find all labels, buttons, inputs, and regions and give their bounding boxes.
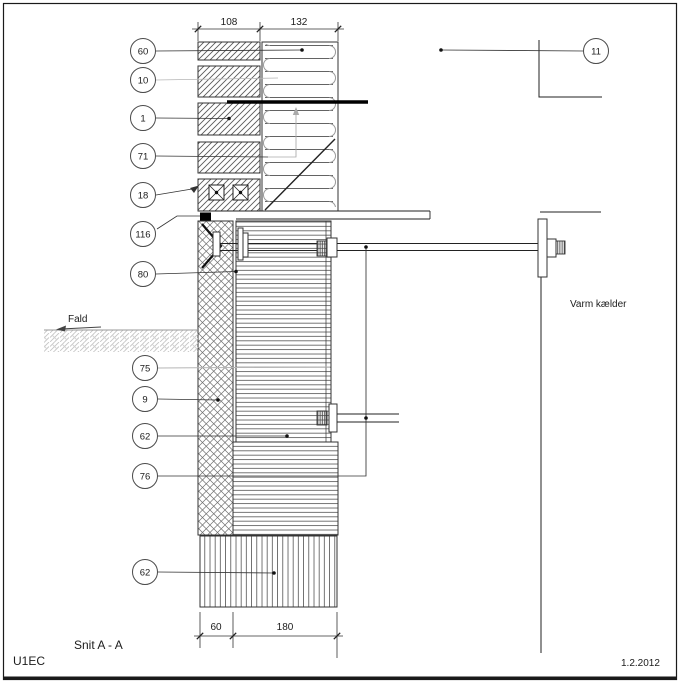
ground-hatch xyxy=(44,330,198,352)
callout-1-label: 1 xyxy=(140,114,145,125)
callout-76-label: 76 xyxy=(140,472,151,483)
callout-9: 9 xyxy=(133,387,158,412)
tie-rod-upper-plate xyxy=(238,228,243,260)
callout-76: 76 xyxy=(133,464,158,489)
callout-80: 80 xyxy=(131,262,156,287)
foundation-footing xyxy=(200,536,337,607)
dim-top-left: 108 xyxy=(221,17,238,28)
sheet-code: U1EC xyxy=(13,654,45,668)
tie-rod-lower-coupler xyxy=(317,411,327,425)
callout-1: 1 xyxy=(131,106,156,131)
tie-rod-upper-coupler xyxy=(317,241,327,256)
callout-11-label: 11 xyxy=(591,47,601,58)
callout-18-label: 18 xyxy=(138,191,149,202)
sealant-joint xyxy=(200,213,211,222)
callout-60: 60 xyxy=(131,39,156,64)
callout-75-label: 75 xyxy=(140,364,151,375)
callout-71-label: 71 xyxy=(138,152,149,163)
callout-10-label: 10 xyxy=(138,76,149,87)
section-drawing: Fald Varm kælder 60 xyxy=(0,0,680,686)
sheet-date: 1.2.2012 xyxy=(621,658,660,669)
callout-62-footing-label: 62 xyxy=(140,568,151,579)
tie-rod-thread-end xyxy=(556,241,565,254)
callout-116-label: 116 xyxy=(135,230,150,241)
drawing-sheet: Fald Varm kælder 60 xyxy=(0,0,680,686)
room-label: Varm kælder xyxy=(570,299,627,310)
callout-62-wall-label: 62 xyxy=(140,432,151,443)
tie-rod-anchor-plate xyxy=(538,219,547,277)
tie-rod-nut xyxy=(547,239,556,257)
callout-60-label: 60 xyxy=(138,47,149,58)
callout-75: 75 xyxy=(133,356,158,381)
section-title: Snit A - A xyxy=(74,638,123,652)
callout-62-footing: 62 xyxy=(133,560,158,585)
callout-71: 71 xyxy=(131,144,156,169)
concrete-wall xyxy=(233,221,338,535)
callout-80-label: 80 xyxy=(138,270,149,281)
dim-bottom-right: 180 xyxy=(277,622,294,633)
callout-62-wall: 62 xyxy=(133,424,158,449)
tie-rod-lower-plate xyxy=(329,404,337,432)
masonry-wall xyxy=(198,42,260,211)
dim-bottom-left: 60 xyxy=(210,622,222,633)
callout-116: 116 xyxy=(131,222,156,247)
callout-9-label: 9 xyxy=(142,395,147,406)
callout-18: 18 xyxy=(131,183,156,208)
insulation-batt xyxy=(262,42,338,211)
slope-label: Fald xyxy=(68,314,87,325)
dim-top-right: 132 xyxy=(291,17,308,28)
callout-10: 10 xyxy=(131,68,156,93)
callout-11: 11 xyxy=(584,39,609,64)
